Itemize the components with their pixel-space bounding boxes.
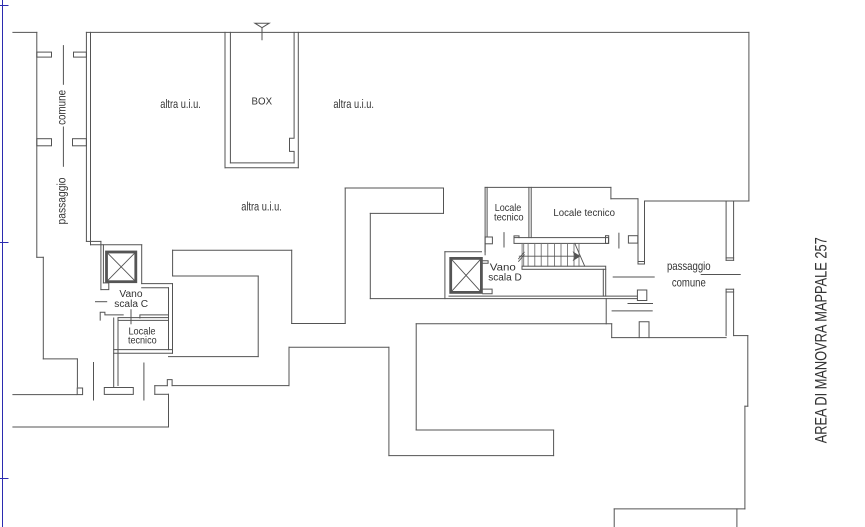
svg-text:Locale tecnico: Locale tecnico — [553, 208, 615, 219]
svg-text:passaggio: passaggio — [56, 177, 69, 224]
svg-text:altra u.i.u.: altra u.i.u. — [241, 199, 282, 213]
svg-text:scala C: scala C — [114, 299, 148, 310]
svg-text:scala D: scala D — [488, 272, 522, 283]
svg-text:comune: comune — [672, 276, 706, 290]
svg-text:BOX: BOX — [252, 96, 273, 107]
svg-text:passaggio: passaggio — [667, 259, 711, 273]
svg-text:AREA DI MANOVRA MAPPALE 257: AREA DI MANOVRA MAPPALE 257 — [813, 237, 831, 443]
svg-text:tecnico: tecnico — [494, 213, 524, 224]
svg-text:altra u.i.u.: altra u.i.u. — [333, 97, 374, 111]
svg-text:altra u.i.u.: altra u.i.u. — [160, 97, 201, 111]
svg-text:tecnico: tecnico — [128, 336, 157, 347]
svg-text:comune: comune — [56, 90, 69, 125]
